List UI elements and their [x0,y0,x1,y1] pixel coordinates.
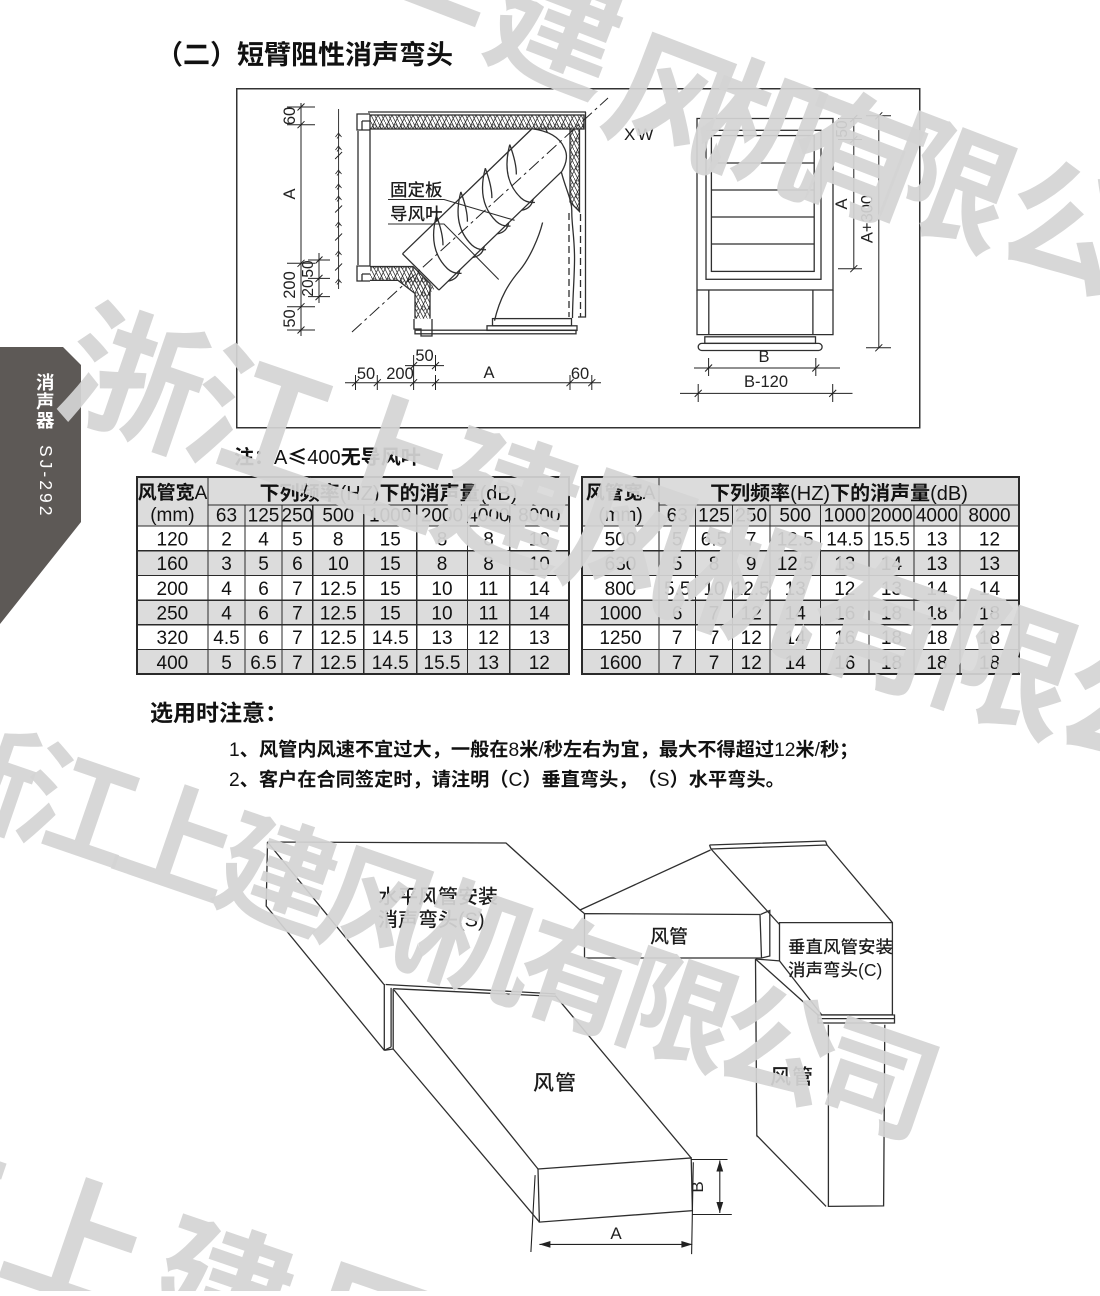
svg-text:A: A [833,198,851,209]
svg-text:11: 11 [479,579,499,600]
svg-text:4: 4 [221,579,232,600]
svg-text:15.5: 15.5 [873,529,910,550]
svg-text:B-120: B-120 [744,373,788,391]
svg-text:14.5: 14.5 [372,653,409,674]
svg-text:60: 60 [571,365,589,383]
svg-text:15: 15 [380,604,401,625]
svg-text:13: 13 [979,554,1000,575]
svg-text:(dB): (dB) [930,483,968,505]
svg-text:2: 2 [229,770,240,791]
svg-text:320: 320 [157,628,189,649]
svg-text:3: 3 [221,554,232,575]
svg-text:200: 200 [386,365,414,383]
svg-text:6: 6 [258,579,269,600]
svg-text:10: 10 [431,604,452,625]
svg-text:6.5: 6.5 [250,653,276,674]
svg-text:/: / [815,740,821,761]
svg-text:10: 10 [431,579,452,600]
svg-text:12: 12 [774,740,795,761]
svg-text:4.5: 4.5 [213,628,239,649]
svg-text:14.5: 14.5 [826,529,863,550]
svg-text:/: / [538,740,544,761]
svg-text:60: 60 [281,107,299,125]
svg-text:(HZ): (HZ) [790,483,830,505]
svg-text:200: 200 [157,579,189,600]
svg-text:63: 63 [216,506,237,527]
svg-text:(C): (C) [858,960,882,980]
svg-text:14: 14 [529,604,551,625]
svg-text:13: 13 [529,628,550,649]
svg-text:12: 12 [741,653,762,674]
svg-text:14: 14 [529,579,551,600]
svg-text:15.5: 15.5 [424,653,461,674]
svg-text:14.5: 14.5 [372,628,409,649]
svg-text:12.5: 12.5 [320,579,357,600]
svg-text:500: 500 [779,506,811,527]
svg-text:12.5: 12.5 [320,628,357,649]
svg-text:B: B [688,1181,707,1192]
svg-text:12.5: 12.5 [320,604,357,625]
svg-text:(mm): (mm) [150,505,194,526]
svg-text:10: 10 [328,554,349,575]
svg-text:12: 12 [529,653,550,674]
svg-text:5: 5 [221,653,232,674]
svg-text:6: 6 [292,554,303,575]
svg-text:1250: 1250 [599,628,641,649]
svg-text:4: 4 [221,604,232,625]
svg-text:8: 8 [333,529,344,550]
svg-text:400: 400 [307,447,340,469]
svg-text:5: 5 [258,554,269,575]
svg-text:7: 7 [709,653,720,674]
svg-text:6: 6 [258,628,269,649]
svg-text:13: 13 [926,529,947,550]
svg-text:250: 250 [157,604,189,625]
svg-text:15: 15 [380,579,401,600]
svg-text:8: 8 [509,740,520,761]
svg-text:50: 50 [300,260,317,278]
svg-text:7: 7 [292,653,303,674]
svg-text:1600: 1600 [599,653,641,674]
svg-text:160: 160 [157,554,189,575]
svg-text:12: 12 [478,628,499,649]
svg-text:400: 400 [157,653,189,674]
svg-text:12.5: 12.5 [320,653,357,674]
svg-text:15: 15 [380,554,401,575]
svg-text:1000: 1000 [599,604,641,625]
svg-text:200: 200 [281,271,299,299]
svg-text:2: 2 [221,529,232,550]
svg-text:11: 11 [479,604,499,625]
svg-text:C: C [509,770,523,791]
svg-text:12: 12 [979,529,1000,550]
svg-text:A: A [195,483,208,504]
svg-text:7: 7 [672,653,683,674]
svg-text:50: 50 [357,365,375,383]
svg-text:4: 4 [258,529,269,550]
svg-text:250: 250 [282,506,314,527]
svg-text:A: A [483,364,494,382]
svg-text:2000: 2000 [870,506,912,527]
svg-text:8: 8 [437,554,448,575]
svg-text:50: 50 [415,347,433,365]
svg-text:1: 1 [229,740,240,761]
svg-text:4000: 4000 [916,506,958,527]
svg-text:S: S [657,770,670,791]
svg-text:13: 13 [431,628,452,649]
svg-text:20: 20 [300,279,317,297]
svg-text:7: 7 [292,604,303,625]
svg-text:6: 6 [258,604,269,625]
svg-text:7: 7 [672,628,683,649]
svg-text:120: 120 [157,529,189,550]
svg-text:A: A [281,188,299,199]
svg-text:18: 18 [926,628,947,649]
svg-text:7: 7 [292,628,303,649]
svg-text:15: 15 [380,529,401,550]
svg-text:B: B [758,348,769,366]
svg-text:125: 125 [698,506,730,527]
svg-text:8000: 8000 [968,506,1010,527]
svg-text:13: 13 [926,554,947,575]
svg-text:A: A [610,1224,622,1243]
svg-text:125: 125 [248,506,280,527]
svg-text:50: 50 [281,309,299,327]
svg-text:12: 12 [741,628,762,649]
svg-text:13: 13 [478,653,499,674]
svg-text:800: 800 [605,579,637,600]
svg-text:7: 7 [292,579,303,600]
svg-text:1000: 1000 [824,506,866,527]
svg-text:SJ-292: SJ-292 [36,445,56,518]
svg-text:5: 5 [292,529,303,550]
